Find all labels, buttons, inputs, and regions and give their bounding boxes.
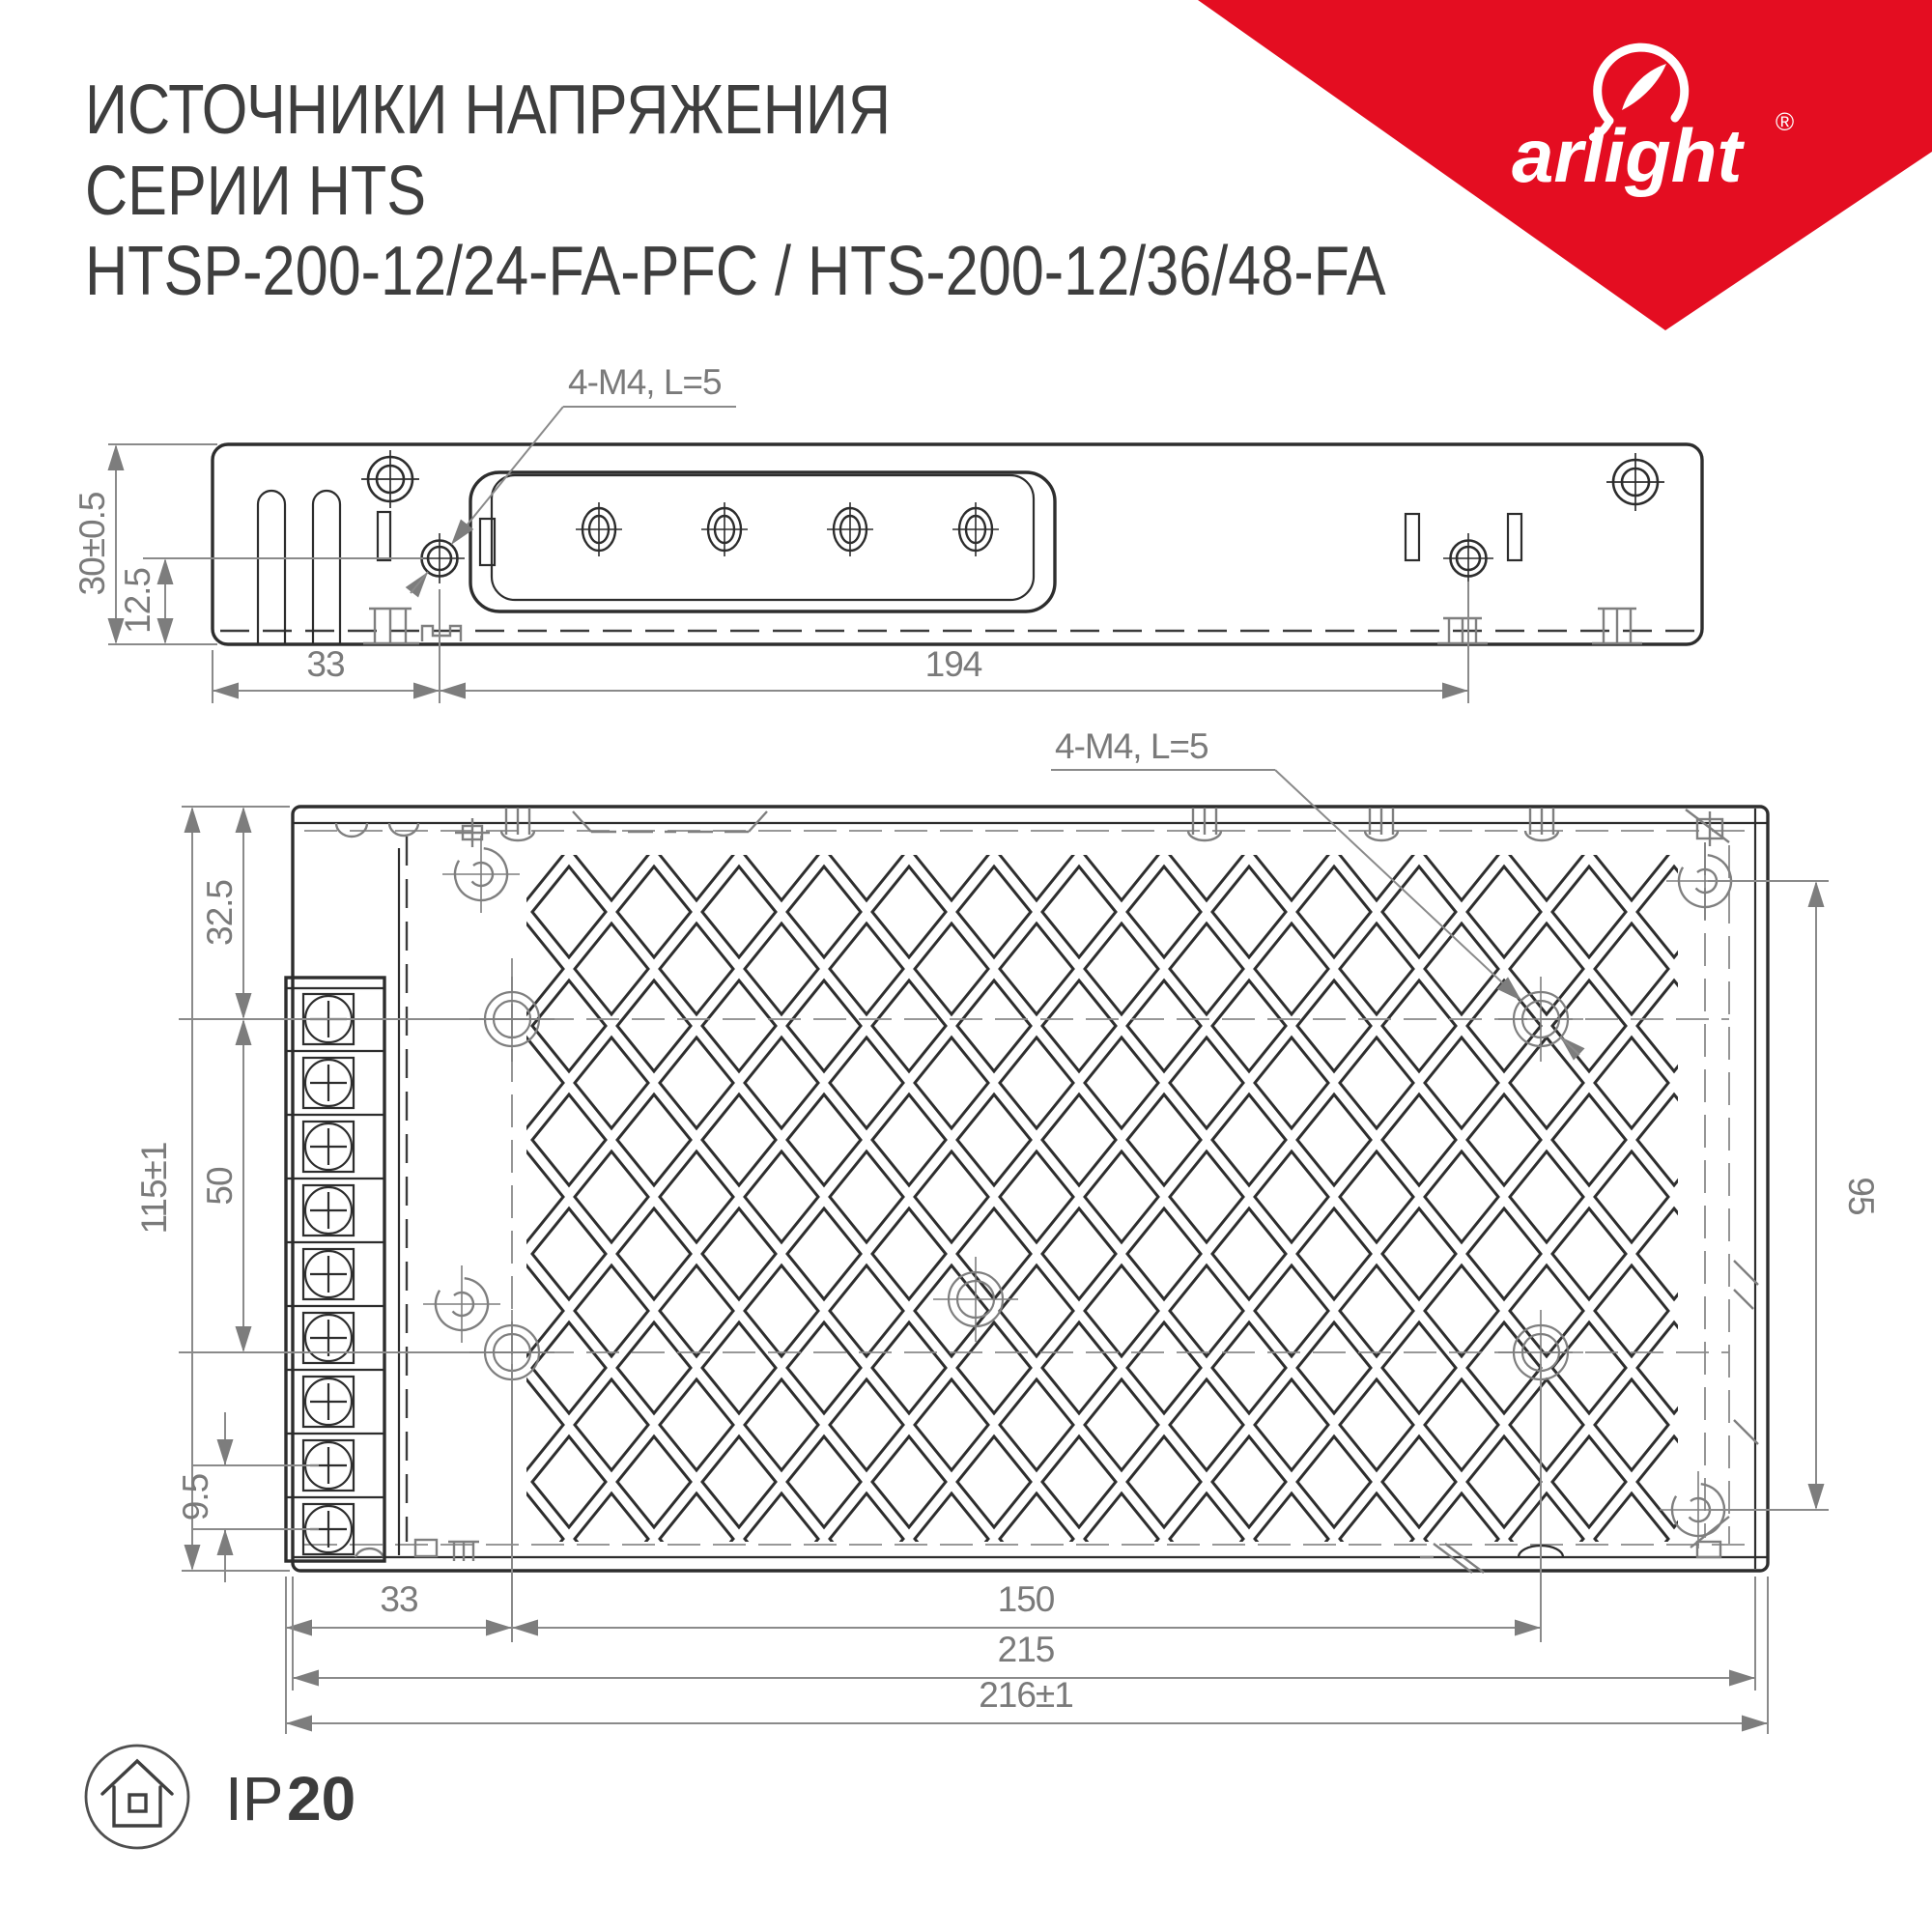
side-slot-r1 [1406, 514, 1419, 560]
terminal-block [286, 978, 384, 1561]
pcb-screw-mid-left [423, 1265, 500, 1343]
dim-32-5: 32.5 [182, 807, 290, 1019]
side-m4-hole-right [1443, 533, 1493, 583]
terminal-screw-7 [303, 1377, 354, 1427]
terminal-screw-3 [303, 1122, 354, 1172]
title-line-3: HTSP-200-12/24-FA-PFC / HTS-200-12/36/48… [85, 233, 1386, 310]
svg-text:215: 215 [998, 1630, 1055, 1669]
registered-mark: ® [1776, 107, 1794, 136]
svg-text:50: 50 [200, 1167, 240, 1206]
ip-prefix: IP [225, 1764, 283, 1833]
terminal-screw-6 [303, 1313, 354, 1363]
side-screw-top-right [1606, 453, 1664, 511]
panel-screw-3 [827, 502, 873, 556]
dim-33-side: 33 [213, 589, 440, 703]
datasheet-page: arlight ® ИСТОЧНИКИ НАПРЯЖЕНИЯ СЕРИИ HTS… [0, 0, 1932, 1932]
svg-text:30±0.5: 30±0.5 [72, 492, 112, 595]
side-screw-top-left [361, 450, 419, 508]
svg-text:33: 33 [306, 644, 344, 684]
title-line-2: СЕРИИ HTS [85, 153, 426, 230]
side-vent-slots [258, 491, 340, 643]
terminal-screw-4 [303, 1185, 354, 1236]
panel-screw-4 [952, 502, 999, 556]
svg-text:95: 95 [1841, 1177, 1881, 1215]
svg-text:216±1: 216±1 [979, 1675, 1073, 1715]
terminal-screw-5 [303, 1249, 354, 1299]
page-title: ИСТОЧНИКИ НАПРЯЖЕНИЯ СЕРИИ HTS HTSP-200-… [85, 71, 1386, 310]
pcb-screw-top-left [442, 836, 520, 913]
svg-text:150: 150 [998, 1579, 1055, 1619]
top-view-drawing: 32.5 50 115±1 9.5 [134, 726, 1881, 1734]
ip-rating-badge: IP 20 [86, 1746, 355, 1848]
svg-text:9.5: 9.5 [176, 1473, 215, 1520]
panel-screw-1 [576, 502, 622, 556]
svg-text:115±1: 115±1 [134, 1143, 174, 1235]
terminal-screw-2 [303, 1058, 354, 1108]
svg-text:33: 33 [380, 1579, 417, 1619]
svg-text:12.5: 12.5 [118, 568, 157, 634]
side-panel-inner [492, 475, 1034, 600]
dim-50: 50 [200, 1019, 252, 1352]
side-slot-small [378, 512, 390, 560]
house-icon [102, 1761, 172, 1826]
panel-screw-2 [701, 502, 748, 556]
side-view-drawing: 30±0.5 12.5 33 194 4-M4, L=5 [72, 362, 1702, 703]
side-panel-outer [470, 472, 1055, 611]
side-bottom-brackets [363, 609, 1642, 643]
svg-text:4-M4, L=5: 4-M4, L=5 [1055, 726, 1208, 766]
ip-value: 20 [287, 1764, 355, 1833]
dim-95: 95 [1708, 881, 1881, 1510]
side-hole-label: 4-M4, L=5 [406, 362, 736, 598]
mesh-vents [526, 855, 1678, 1542]
arlight-wordmark: arlight [1512, 113, 1745, 198]
drawing-canvas: arlight ® ИСТОЧНИКИ НАПРЯЖЕНИЯ СЕРИИ HTS… [0, 0, 1932, 1932]
title-line-1: ИСТОЧНИКИ НАПРЯЖЕНИЯ [85, 71, 891, 149]
top-edge-details [336, 808, 1729, 847]
svg-text:194: 194 [925, 644, 982, 684]
svg-text:4-M4, L=5: 4-M4, L=5 [568, 362, 722, 402]
svg-text:32.5: 32.5 [200, 880, 240, 946]
side-slot-r2 [1508, 514, 1521, 560]
